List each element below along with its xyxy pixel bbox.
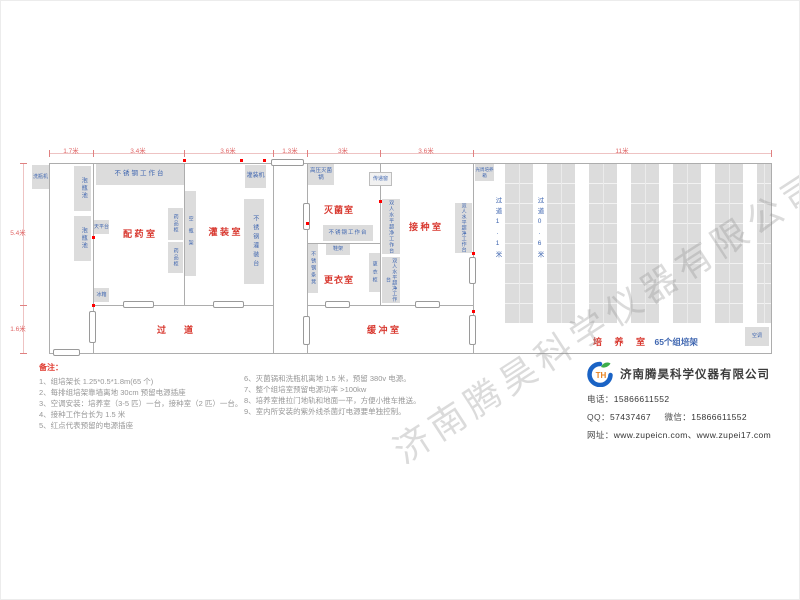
equipment-clean-bench: 双人水平超净工作台 [455, 203, 472, 253]
note-item: 6、灭菌锅和洗瓶机离地 1.5 米，预留 380v 电源。 [244, 373, 421, 384]
company-web-line: 网址：www.zupeicn.com、www.zupei17.com [587, 429, 771, 441]
door-inoc-buffer [415, 301, 440, 308]
door-prep-corridor [123, 301, 154, 308]
note-item: 7、整个组培室预留电源功率 >100kw [244, 384, 421, 395]
phone-label: 电话： [587, 394, 614, 404]
room-label-culture-row: 培 养 室 65个组培架 [593, 332, 698, 350]
wall-corridor-top [93, 305, 273, 306]
dim-label: 3.6米 [213, 145, 243, 155]
wall-bottom [49, 353, 771, 354]
company-phone-line: 电话：15866611552 [587, 393, 771, 405]
power-socket-dot [92, 236, 95, 239]
dim-tick [380, 150, 381, 157]
dim-tick [49, 150, 50, 157]
note-item: 5、红点代表预留的电源插座 [39, 420, 242, 431]
equipment-medicine-cabinet: 药品柜 [168, 242, 183, 273]
note-item: 4、接种工作台长为 1.5 米 [39, 409, 242, 420]
equipment-fridge: 冰箱 [94, 288, 109, 302]
culture-rack-column [547, 164, 575, 323]
room-label-inoculation: 接 种 室 [401, 220, 449, 233]
room-label-sterilization: 灭菌室 [319, 203, 359, 216]
equipment-bottle-washer: 洗瓶机 [32, 165, 49, 189]
floorplan-canvas: 济南腾昊科学仪器有限公司 1.7米 3.4米 3.6米 1.3米 3米 3.6米… [0, 0, 800, 600]
room-label-corridor: 过道 [149, 323, 219, 336]
wechat-value: 15866611552 [691, 412, 747, 422]
svg-text:TH: TH [596, 371, 607, 380]
notes-block-right: 6、灭菌锅和洗瓶机离地 1.5 米，预留 380v 电源。 7、整个组培室预留电… [244, 373, 421, 417]
equipment-balance-table: 天平台 [94, 220, 109, 234]
room-label-changing: 更衣室 [319, 273, 359, 286]
equipment-locker: 更衣柜 [369, 253, 380, 292]
room-label-prep: 配 药 室 [109, 227, 169, 240]
dim-tick [771, 150, 772, 157]
equipment-soak-pool: 泡瓶池 [74, 166, 91, 211]
power-socket-dot [183, 159, 186, 162]
door-main-entry-top [271, 159, 304, 166]
company-logo-icon: TH [587, 361, 613, 387]
dim-tick [273, 150, 274, 157]
qq-label: QQ： [587, 412, 610, 422]
power-socket-dot [472, 252, 475, 255]
equipment-steel-worktable-prep: 不锈钢工作台 [96, 164, 184, 185]
dim-tick [473, 150, 474, 157]
dimension-line-top [49, 153, 771, 154]
notes-title: 备注： [39, 362, 242, 373]
door-buffer-culture [469, 315, 476, 345]
door-bottom-entry [53, 349, 80, 356]
door-changing-buffer [325, 301, 350, 308]
dim-label: 5.4米 [5, 227, 31, 237]
qq-value: 57437467 [610, 412, 651, 422]
dim-tick [93, 150, 94, 157]
equipment-filling-machine: 灌装机 [245, 165, 266, 188]
power-socket-dot [472, 310, 475, 313]
aisle-label-1: 过道1.1米 [492, 197, 502, 297]
note-item: 1、组培架长 1.25*0.5*1.8m(65 个) [39, 376, 242, 387]
dim-tick [20, 305, 27, 306]
dim-tick [20, 163, 27, 164]
equipment-pass-window: 传递窗 [369, 172, 392, 186]
equipment-shoe-rack: 鞋架 [326, 244, 350, 255]
culture-rack-column [631, 164, 659, 323]
power-socket-dot [379, 200, 382, 203]
equipment-steel-bench: 不锈钢条凳 [308, 244, 318, 293]
dim-label: 1.6米 [5, 323, 31, 333]
dim-label: 11米 [607, 145, 637, 155]
equipment-clean-bench: 双人水平超净工作台 [382, 257, 400, 303]
door-steril-passage [303, 203, 310, 230]
dim-label: 1.3米 [275, 145, 305, 155]
company-header: TH 济南腾昊科学仪器有限公司 [587, 361, 771, 387]
equipment-soak-pool: 泡瓶池 [74, 216, 91, 261]
dim-label: 3米 [328, 145, 358, 155]
dim-tick [20, 353, 27, 354]
note-item: 2、每排组培架靠墙离地 30cm 预留电源插座 [39, 387, 242, 398]
dim-tick [184, 150, 185, 157]
culture-rack-column [757, 164, 771, 323]
dim-tick [307, 150, 308, 157]
note-item: 9、室内所安装的紫外线杀菌灯电源要单独控制。 [244, 406, 421, 417]
note-item: 3、空调安装：培养室（3-5 匹）一台，接种室（2 匹）一台。 [39, 398, 242, 409]
web-value: www.zupeicn.com、www.zupei17.com [614, 430, 771, 440]
equipment-photoperiod-incubator: 光周培养箱 [475, 164, 494, 181]
room-label-culture: 培 养 室 [593, 337, 650, 347]
power-socket-dot [306, 222, 309, 225]
web-label: 网址： [587, 430, 614, 440]
company-name: 济南腾昊科学仪器有限公司 [620, 366, 770, 382]
room-label-buffer: 缓 冲 室 [357, 323, 409, 336]
equipment-medicine-cabinet: 药品柜 [168, 208, 183, 240]
note-item: 8、培养室推拉门地轨和地面一平，方便小推车推送。 [244, 395, 421, 406]
wall-left [49, 163, 50, 354]
culture-rack-column [715, 164, 743, 323]
door-wash-zone [89, 311, 96, 343]
wechat-label: 微信： [665, 412, 692, 422]
power-socket-dot [92, 304, 95, 307]
dim-label: 3.4米 [123, 145, 153, 155]
equipment-steel-filling-table: 不锈钢灌装台 [244, 199, 264, 284]
dim-label: 1.7米 [56, 145, 86, 155]
aisle-label-2: 过道0.6米 [534, 197, 544, 297]
culture-rack-column [589, 164, 617, 323]
power-socket-dot [240, 159, 243, 162]
power-socket-dot [263, 159, 266, 162]
room-label-filling: 灌 装 室 [197, 225, 252, 238]
equipment-air-conditioner: 空调 [745, 327, 769, 346]
wall-passage-left [273, 163, 274, 353]
wall-right [771, 163, 772, 354]
culture-rack-column [673, 164, 701, 323]
notes-block: 备注： 1、组培架长 1.25*0.5*1.8m(65 个) 2、每排组培架靠墙… [39, 362, 242, 431]
company-qq-line: QQ：57437467 微信：15866611552 [587, 411, 771, 423]
culture-rack-count: 65个组培架 [654, 337, 697, 347]
dim-label: 3.6米 [411, 145, 441, 155]
equipment-autoclave: 高压灭菌锅 [308, 164, 334, 185]
door-passage-lower [303, 316, 310, 345]
door-inoc-culture [469, 257, 476, 284]
phone-value: 15866611552 [614, 394, 670, 404]
equipment-clean-bench: 双人水平超净工作台 [382, 199, 400, 254]
culture-rack-column [505, 164, 533, 323]
company-block: TH 济南腾昊科学仪器有限公司 电话：15866611552 QQ：574374… [587, 361, 771, 441]
door-filling-corridor [213, 301, 244, 308]
equipment-empty-bottle-rack: 空瓶架 [185, 191, 196, 276]
equipment-steel-worktable-steril: 不锈钢工作台 [323, 225, 373, 241]
